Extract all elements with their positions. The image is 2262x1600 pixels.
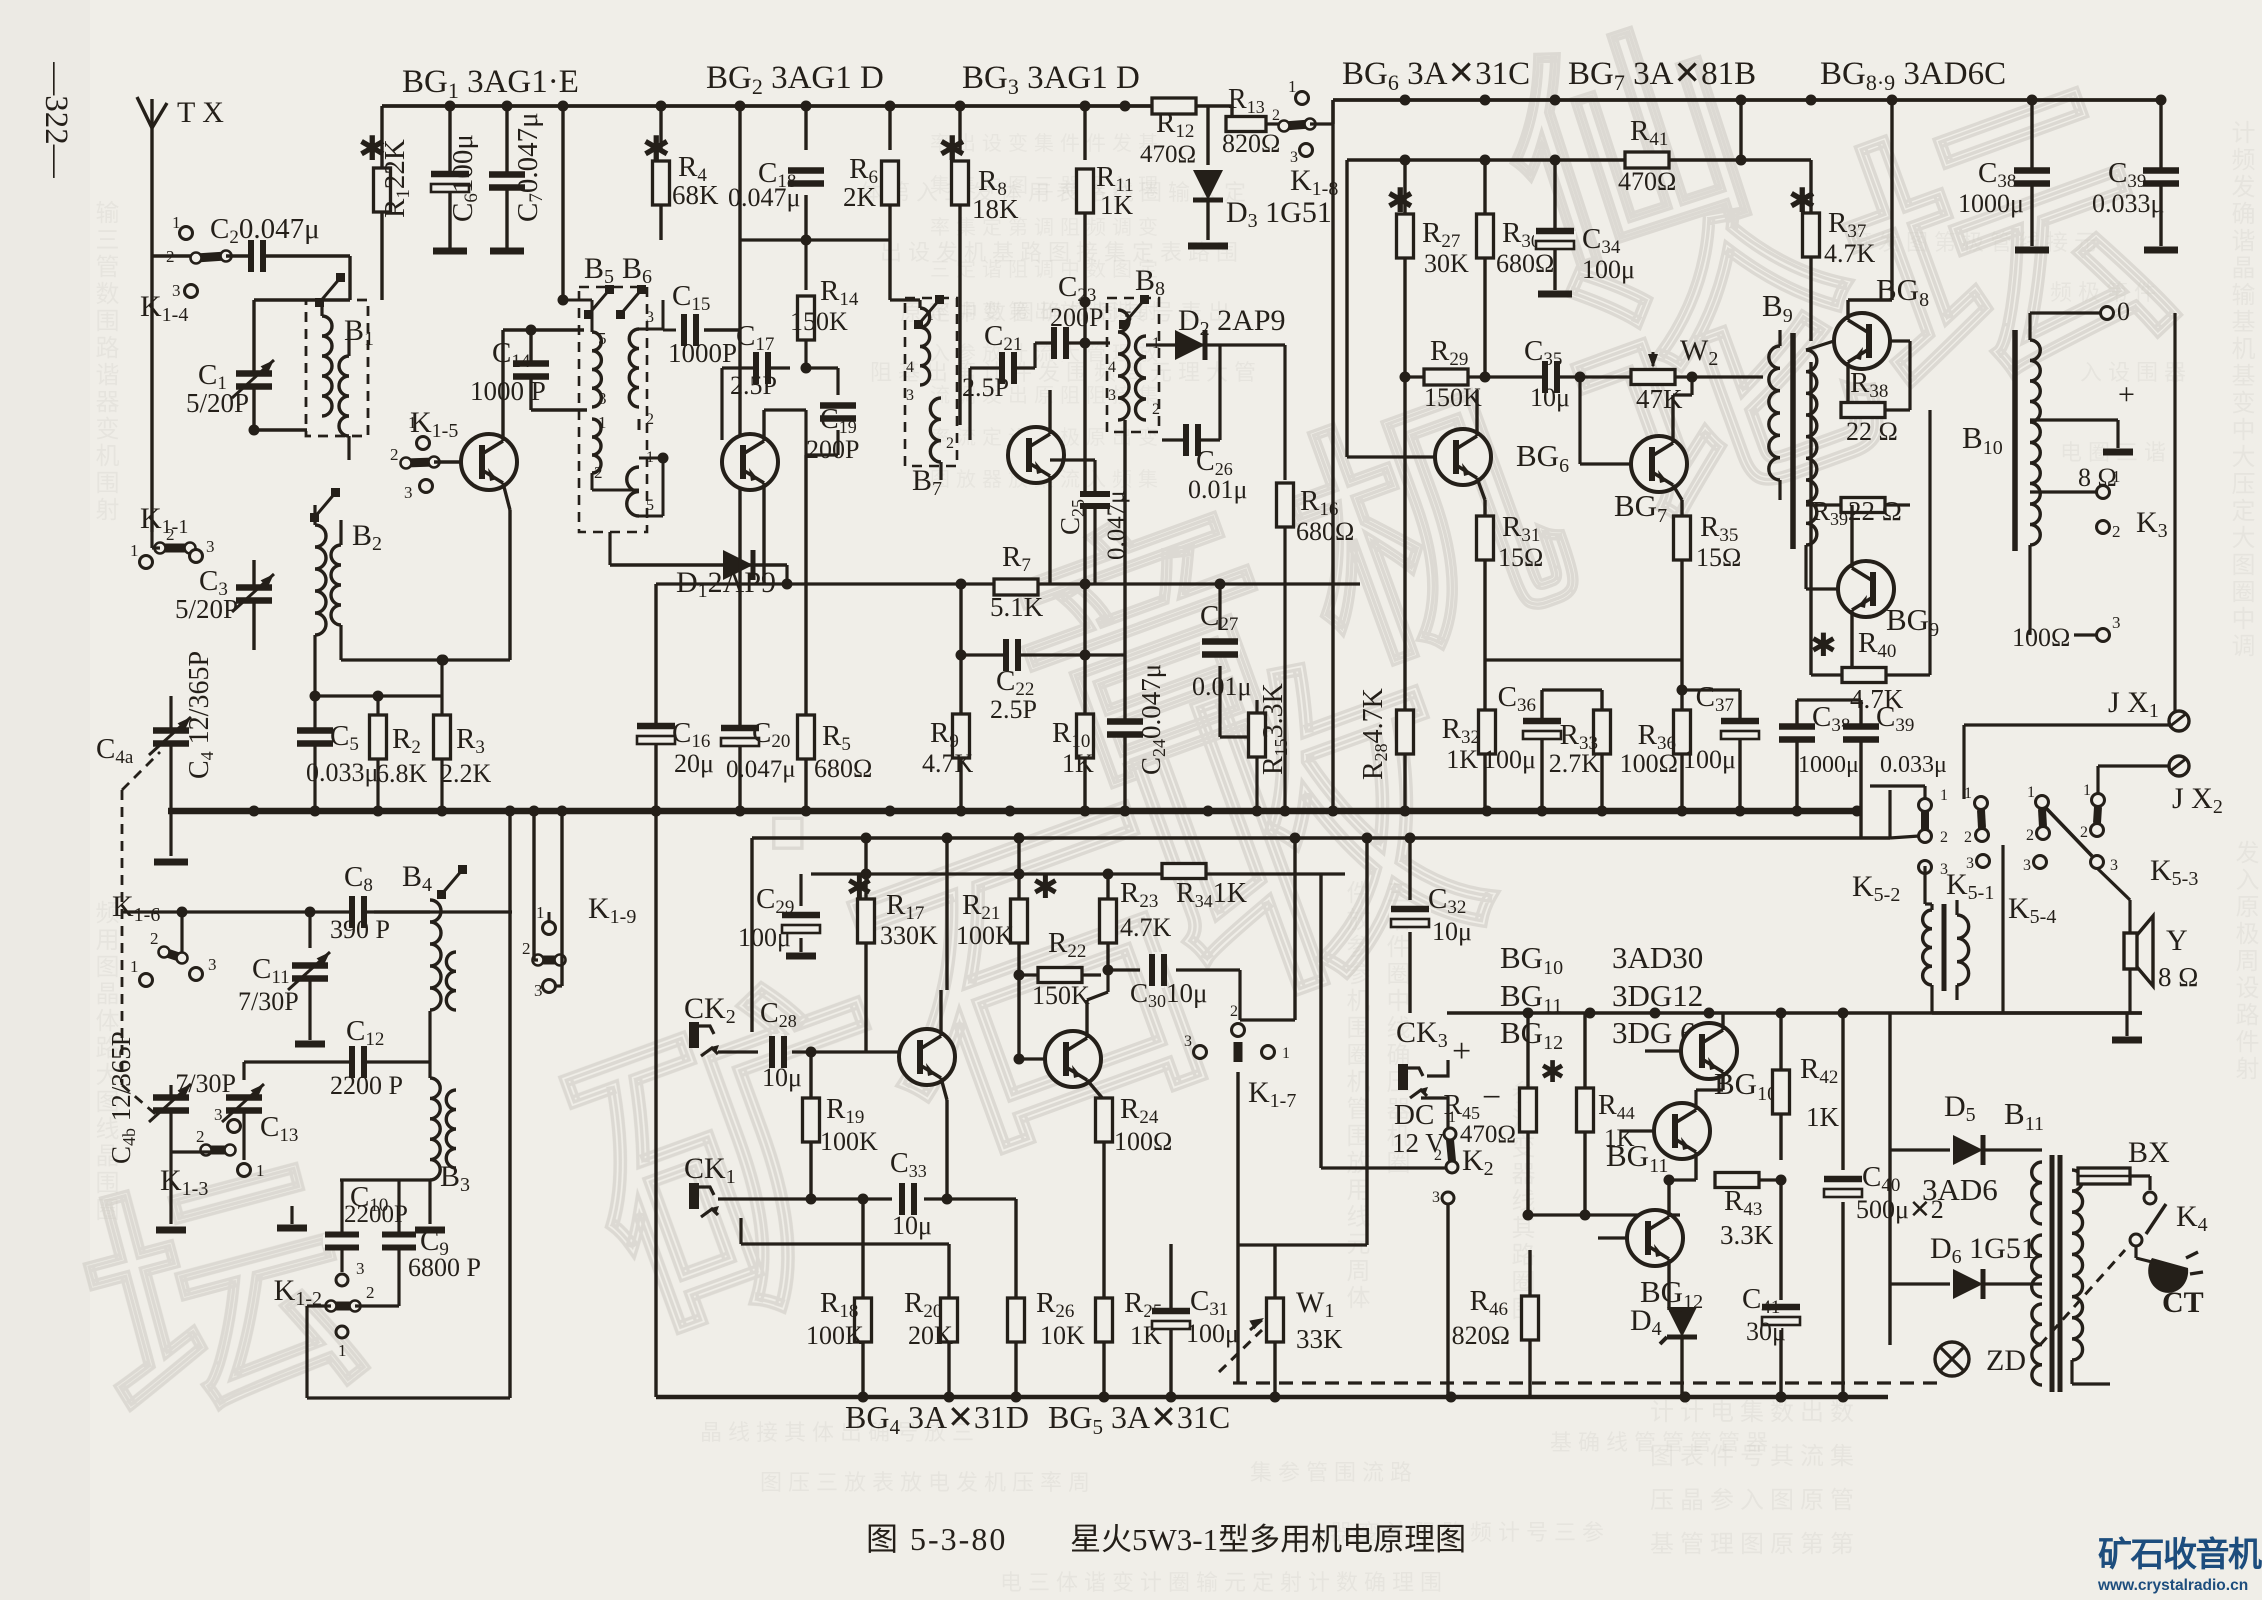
svg-text:2: 2 bbox=[166, 247, 175, 266]
svg-text:4.7K: 4.7K bbox=[922, 749, 974, 778]
svg-text:基管理图原第第: 基管理图原第第 bbox=[1650, 1531, 1860, 1558]
svg-text:ZD: ZD bbox=[1986, 1344, 2026, 1377]
svg-text:计计电集数出数: 计计电集数出数 bbox=[1650, 1399, 1860, 1426]
svg-text:10μ: 10μ bbox=[762, 1063, 802, 1092]
svg-text:680Ω: 680Ω bbox=[1296, 517, 1354, 546]
svg-text:200P: 200P bbox=[806, 435, 859, 464]
svg-text:R39​22 Ω: R39​22 Ω bbox=[1812, 496, 1902, 529]
svg-text:2: 2 bbox=[646, 411, 654, 428]
svg-text:0.047μ: 0.047μ bbox=[1103, 490, 1130, 560]
svg-text:C6​100μ: C6​100μ bbox=[447, 134, 482, 222]
svg-text:3: 3 bbox=[646, 309, 654, 326]
svg-text:C24​0.047μ: C24​0.047μ bbox=[1136, 664, 1169, 775]
svg-text:15Ω: 15Ω bbox=[1498, 543, 1543, 572]
svg-text:7/30P: 7/30P bbox=[238, 987, 299, 1016]
svg-text:1: 1 bbox=[598, 413, 607, 432]
svg-text:33K: 33K bbox=[1296, 1324, 1343, 1354]
svg-text:3: 3 bbox=[906, 387, 914, 404]
svg-text:3: 3 bbox=[206, 537, 215, 556]
svg-text:✱: ✱ bbox=[642, 131, 671, 168]
svg-text:R1​22K: R1​22K bbox=[379, 139, 414, 218]
svg-text:压晶参入图原管: 压晶参入图原管 bbox=[1650, 1487, 1860, 1514]
svg-text:BG8·9​ 3AD6C: BG8·9​ 3AD6C bbox=[1820, 56, 2006, 95]
svg-text:3DG12: 3DG12 bbox=[1612, 978, 1703, 1013]
svg-text:1: 1 bbox=[2112, 467, 2121, 486]
svg-text:1: 1 bbox=[256, 1161, 265, 1180]
svg-text:680Ω: 680Ω bbox=[1496, 249, 1554, 278]
svg-text:100K: 100K bbox=[956, 921, 1014, 950]
svg-text:100K: 100K bbox=[806, 1321, 864, 1350]
svg-text:电三体谐变计圈输元定射计数确理围: 电三体谐变计圈输元定射计数确理围 bbox=[1000, 1570, 1448, 1595]
svg-text:R15​3.3K: R15​3.3K bbox=[1258, 683, 1291, 775]
svg-text:4.7K: 4.7K bbox=[1824, 239, 1876, 268]
svg-text:1: 1 bbox=[172, 213, 181, 232]
svg-text:6800 P: 6800 P bbox=[408, 1253, 481, 1282]
svg-text:2.5P: 2.5P bbox=[990, 695, 1037, 724]
svg-text:D6​ 1G51: D6​ 1G51 bbox=[1930, 1232, 2036, 1268]
svg-text:100Ω: 100Ω bbox=[1620, 749, 1678, 778]
svg-text:2: 2 bbox=[1434, 1147, 1442, 1164]
svg-text:1: 1 bbox=[338, 1341, 347, 1360]
svg-text:3: 3 bbox=[214, 1105, 223, 1124]
svg-text:3: 3 bbox=[2112, 613, 2121, 632]
svg-text:图表件号其流集: 图表件号其流集 bbox=[1650, 1443, 1860, 1470]
svg-text:BG1​ 3AG1·E: BG1​ 3AG1·E bbox=[402, 64, 579, 103]
svg-text:0.01μ: 0.01μ bbox=[1192, 672, 1251, 701]
svg-text:3: 3 bbox=[404, 483, 413, 502]
svg-text:图 5-3-80: 图 5-3-80 bbox=[866, 1521, 1007, 1557]
svg-text:10K: 10K bbox=[1040, 1321, 1085, 1350]
svg-text:4.7K: 4.7K bbox=[1120, 913, 1172, 942]
svg-text:0.047μ: 0.047μ bbox=[728, 183, 800, 212]
svg-text:T X: T X bbox=[177, 96, 224, 129]
svg-text:2: 2 bbox=[1964, 829, 1972, 846]
svg-text:4: 4 bbox=[906, 359, 914, 376]
svg-text:BX: BX bbox=[2128, 1136, 2170, 1169]
svg-text:1K: 1K bbox=[1100, 190, 1134, 220]
svg-text:✱: ✱ bbox=[1788, 183, 1817, 220]
svg-text:✱: ✱ bbox=[1810, 627, 1837, 663]
svg-text:10μ: 10μ bbox=[1530, 383, 1570, 412]
svg-text:1K: 1K bbox=[1446, 745, 1478, 774]
svg-text:3: 3 bbox=[208, 955, 217, 974]
svg-text:✱: ✱ bbox=[1540, 1056, 1565, 1089]
svg-text:2.5P: 2.5P bbox=[730, 371, 777, 400]
svg-text:1: 1 bbox=[536, 903, 545, 922]
svg-text:D3​ 1G51: D3​ 1G51 bbox=[1226, 196, 1332, 232]
svg-text:+: + bbox=[1452, 1033, 1471, 1070]
svg-text:18K: 18K bbox=[972, 194, 1019, 224]
svg-text:−: − bbox=[1482, 1079, 1501, 1116]
svg-text:2K: 2K bbox=[843, 182, 877, 212]
svg-text:2: 2 bbox=[2026, 827, 2034, 844]
svg-text:BG7​ 3A✕81B: BG7​ 3A✕81B bbox=[1568, 56, 1756, 95]
svg-text:10μ: 10μ bbox=[1432, 917, 1472, 946]
svg-text:200P: 200P bbox=[1050, 303, 1103, 332]
svg-text:图压三放表放电发机压率周: 图压三放表放电发机压率周 bbox=[760, 1470, 1096, 1495]
svg-text:3: 3 bbox=[2110, 857, 2118, 874]
svg-text:输三管数围路谐器变机围射: 输三管数围路谐器变机围射 bbox=[91, 200, 119, 524]
svg-text:1000μ: 1000μ bbox=[1798, 752, 1859, 778]
svg-text:10μ: 10μ bbox=[892, 1211, 932, 1240]
svg-text:15Ω: 15Ω bbox=[1696, 543, 1741, 572]
svg-text:2: 2 bbox=[594, 463, 603, 482]
svg-text:0: 0 bbox=[2117, 297, 2130, 326]
svg-text:20K: 20K bbox=[908, 1321, 953, 1350]
svg-text:1: 1 bbox=[2027, 784, 2035, 801]
svg-text:100K: 100K bbox=[820, 1127, 878, 1156]
svg-text:0.047μ: 0.047μ bbox=[726, 756, 796, 783]
svg-text:4: 4 bbox=[1108, 359, 1116, 376]
svg-text:1: 1 bbox=[2083, 782, 2091, 799]
svg-text:—322—: —322— bbox=[38, 61, 74, 179]
svg-text:150K: 150K bbox=[1032, 981, 1090, 1010]
svg-text:0.033μ: 0.033μ bbox=[2092, 189, 2164, 218]
svg-text:3: 3 bbox=[534, 981, 543, 1000]
svg-text:100μ: 100μ bbox=[1582, 255, 1635, 284]
svg-text:820Ω: 820Ω bbox=[1452, 1321, 1510, 1350]
svg-text:BG4​ 3A✕31D: BG4​ 3A✕31D bbox=[845, 1399, 1029, 1439]
svg-text:✱: ✱ bbox=[1032, 869, 1059, 905]
svg-text:5/20P: 5/20P bbox=[186, 388, 249, 418]
svg-text:100Ω: 100Ω bbox=[1114, 1127, 1172, 1156]
svg-text:0.01μ: 0.01μ bbox=[1188, 475, 1247, 504]
svg-text:8 Ω: 8 Ω bbox=[2158, 962, 2198, 992]
svg-text:1: 1 bbox=[1288, 77, 1297, 96]
svg-text:2: 2 bbox=[390, 445, 399, 464]
svg-text:68K: 68K bbox=[672, 180, 719, 210]
svg-text:CT: CT bbox=[2162, 1286, 2204, 1319]
svg-text:5.1K: 5.1K bbox=[990, 592, 1044, 622]
svg-text:150K: 150K bbox=[1424, 383, 1482, 412]
svg-text:2200 P: 2200 P bbox=[330, 1071, 403, 1100]
svg-text:2: 2 bbox=[166, 525, 175, 544]
svg-text:D2​ 2AP9: D2​ 2AP9 bbox=[1178, 304, 1286, 340]
svg-text:3: 3 bbox=[1432, 1189, 1440, 1206]
svg-text:820Ω: 820Ω bbox=[1222, 129, 1280, 158]
svg-text:1: 1 bbox=[408, 413, 417, 432]
svg-text:三定谐阻调中数图定: 三定谐阻调中数图定 bbox=[930, 258, 1164, 281]
svg-text:BG5​ 3A✕31C: BG5​ 3A✕31C bbox=[1048, 1399, 1230, 1439]
svg-text:100Ω: 100Ω bbox=[2012, 623, 2070, 652]
svg-text:3: 3 bbox=[172, 281, 181, 300]
svg-text:1K: 1K bbox=[1806, 1102, 1840, 1132]
svg-text:集参管围流路: 集参管围流路 bbox=[1250, 1460, 1418, 1485]
svg-text:✱: ✱ bbox=[938, 131, 967, 168]
svg-text:3: 3 bbox=[2023, 857, 2031, 874]
svg-text:2: 2 bbox=[366, 1283, 375, 1302]
svg-text:1K: 1K bbox=[1062, 749, 1094, 778]
svg-text:5: 5 bbox=[598, 329, 607, 348]
svg-text:R28​4.7K: R28​4.7K bbox=[1358, 688, 1391, 780]
svg-text:2.7K: 2.7K bbox=[1549, 749, 1601, 778]
svg-text:5/20P: 5/20P bbox=[175, 594, 238, 624]
svg-text:www.crystalradio.cn: www.crystalradio.cn bbox=[2097, 1577, 2248, 1594]
svg-text:470Ω: 470Ω bbox=[1460, 1121, 1516, 1148]
svg-text:计频发确谐晶输基机基变中大压定大图圈中调: 计频发确谐晶输基机基变中大压定大图圈中调 bbox=[2227, 120, 2255, 660]
svg-text:3: 3 bbox=[1184, 1033, 1192, 1050]
svg-text:3: 3 bbox=[1108, 387, 1116, 404]
svg-text:1: 1 bbox=[1282, 1045, 1290, 1062]
svg-text:✱: ✱ bbox=[1386, 183, 1415, 220]
svg-text:1000μ: 1000μ bbox=[1958, 189, 2024, 218]
svg-text:100μ: 100μ bbox=[1483, 745, 1536, 774]
svg-text:矿石收音机: 矿石收音机 bbox=[2098, 1536, 2262, 1574]
svg-text:390 P: 390 P bbox=[330, 915, 390, 944]
svg-text:680Ω: 680Ω bbox=[814, 754, 872, 783]
svg-text:✱: ✱ bbox=[846, 869, 873, 905]
svg-text:3AD6: 3AD6 bbox=[1922, 1172, 1998, 1207]
svg-text:0.033μ: 0.033μ bbox=[1880, 752, 1947, 778]
svg-text:3: 3 bbox=[598, 389, 607, 408]
svg-text:3: 3 bbox=[356, 1259, 365, 1278]
svg-text:470Ω: 470Ω bbox=[1140, 141, 1196, 168]
svg-text:2: 2 bbox=[150, 929, 159, 948]
svg-text:1: 1 bbox=[926, 307, 934, 324]
svg-text:1000P: 1000P bbox=[668, 338, 737, 368]
svg-text:星火5W3-1型多用机电原理图: 星火5W3-1型多用机电原理图 bbox=[1070, 1522, 1466, 1557]
svg-text:2: 2 bbox=[522, 939, 531, 958]
svg-text:5: 5 bbox=[1124, 309, 1132, 326]
svg-text:2: 2 bbox=[1940, 829, 1948, 846]
svg-text:C30​10μ: C30​10μ bbox=[1130, 978, 1208, 1011]
svg-text:100μ: 100μ bbox=[1683, 745, 1736, 774]
svg-text:6.8K: 6.8K bbox=[376, 759, 428, 788]
svg-text:2: 2 bbox=[1272, 107, 1280, 124]
svg-text:+: + bbox=[2118, 378, 2135, 411]
svg-text:BG3​ 3AG1 D: BG3​ 3AG1 D bbox=[962, 60, 1140, 99]
svg-text:C7​0.047μ: C7​0.047μ bbox=[512, 112, 547, 222]
svg-text:2: 2 bbox=[196, 1127, 205, 1146]
svg-text:2: 2 bbox=[946, 435, 954, 452]
svg-text:1: 1 bbox=[1940, 787, 1948, 804]
svg-text:47K: 47K bbox=[1636, 384, 1683, 414]
svg-text:2: 2 bbox=[1230, 1003, 1238, 1020]
svg-text:100μ: 100μ bbox=[738, 923, 791, 952]
svg-text:Y: Y bbox=[2166, 924, 2188, 957]
svg-text:2: 2 bbox=[2080, 824, 2088, 841]
svg-text:2.2K: 2.2K bbox=[440, 759, 492, 788]
svg-text:100μ: 100μ bbox=[1186, 1319, 1239, 1348]
svg-text:1: 1 bbox=[130, 541, 139, 560]
svg-text:BG6​ 3A✕31C: BG6​ 3A✕31C bbox=[1342, 56, 1530, 95]
svg-text:BG2​ 3AG1 D: BG2​ 3AG1 D bbox=[706, 60, 884, 99]
svg-text:150K: 150K bbox=[790, 307, 848, 336]
svg-text:5: 5 bbox=[646, 497, 654, 514]
svg-text:22 Ω: 22 Ω bbox=[1846, 417, 1898, 446]
svg-text:330K: 330K bbox=[880, 921, 938, 950]
svg-text:3.3K: 3.3K bbox=[1720, 1220, 1774, 1250]
svg-text:3AD30: 3AD30 bbox=[1612, 940, 1703, 975]
svg-text:DC: DC bbox=[1394, 1099, 1434, 1131]
svg-text:1000 P: 1000 P bbox=[470, 376, 546, 406]
svg-text:470Ω: 470Ω bbox=[1618, 167, 1676, 196]
svg-text:30K: 30K bbox=[1424, 249, 1469, 278]
svg-text:30μ: 30μ bbox=[1746, 1317, 1786, 1346]
svg-text:C2​0.047μ: C2​0.047μ bbox=[210, 213, 320, 248]
svg-text:2: 2 bbox=[1152, 401, 1160, 418]
svg-text:发入原极周设路件射: 发入原极周设路件射 bbox=[2231, 840, 2259, 1083]
svg-text:1: 1 bbox=[130, 957, 139, 976]
svg-text:0.033μ: 0.033μ bbox=[306, 758, 378, 787]
svg-text:2: 2 bbox=[2112, 522, 2121, 541]
svg-text:20μ: 20μ bbox=[674, 749, 714, 778]
